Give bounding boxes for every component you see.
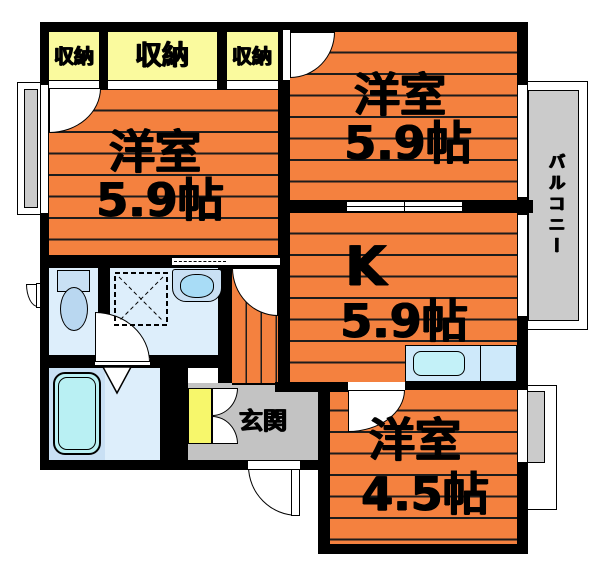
closet-1-label: 収納: [54, 46, 94, 66]
sliding-door-dashed-line: [174, 261, 226, 262]
window-bedroom-left: [40, 85, 49, 213]
opening-bedroom-left-south: [172, 257, 280, 266]
balcony-label: バルコニー: [546, 153, 563, 258]
doorway-bedroom-top-right: [283, 30, 290, 80]
wall-balcony-stub: [517, 200, 533, 213]
kitchen-sink: [413, 351, 465, 376]
wall-closet-div-1: [99, 22, 108, 90]
entrance-label: 玄関: [239, 409, 287, 433]
front-door-leaf: [291, 466, 300, 516]
sliding-door-bedroom-kitchen: [347, 201, 462, 212]
washbasin-bowl: [180, 274, 214, 298]
closet-2-label: 収納: [135, 43, 189, 70]
washbasin: [172, 269, 222, 302]
sliding-door-tick: [404, 202, 405, 211]
wall-bottom-right: [318, 544, 528, 554]
closet-3-label: 収納: [232, 46, 272, 66]
wall-kitchen-south-a: [275, 382, 348, 392]
bedroom-bottom-right-name: 洋室: [369, 417, 461, 463]
wall-kitchen-south-b: [405, 382, 517, 390]
left-window-bay: [24, 89, 38, 208]
shoe-cabinet: [188, 388, 212, 444]
front-doorway: [248, 461, 300, 469]
kitchen-size: 5.9帖: [340, 298, 468, 344]
window-kitchen: [517, 215, 528, 316]
kitchen-name: K: [345, 240, 387, 294]
floorplan: 収納 収納 収納 洋室 5.9帖 洋室 5.9帖 K 5.9帖 洋室 4.5帖 …: [0, 0, 600, 571]
washing-machine-pan: [114, 272, 168, 326]
bedroom-left-size: 5.9帖: [96, 177, 224, 223]
bathtub-inner-rim: [58, 377, 96, 450]
wall-bathroom-right: [160, 368, 188, 460]
kitchen-counter: [405, 345, 517, 382]
wall-bedroom-br-left: [318, 383, 330, 544]
bedroom-top-right-size: 5.9帖: [344, 120, 472, 166]
bedroom-left-name: 洋室: [109, 129, 201, 175]
wall-closet-div-2: [217, 22, 227, 90]
bathtub: [53, 372, 101, 455]
toilet-bowl: [60, 287, 88, 331]
folding-door-bathroom-icon: [101, 365, 133, 395]
bedroom-top-right-name: 洋室: [354, 72, 446, 118]
right-window-bay: [526, 391, 545, 463]
entrance-step-line: [232, 383, 278, 385]
kitchen-counter-divider: [480, 346, 481, 381]
window-bedroom-bottom-right: [517, 390, 528, 462]
bedroom-bottom-right-size: 4.5帖: [361, 471, 489, 517]
window-bedroom-top-right: [517, 85, 528, 197]
